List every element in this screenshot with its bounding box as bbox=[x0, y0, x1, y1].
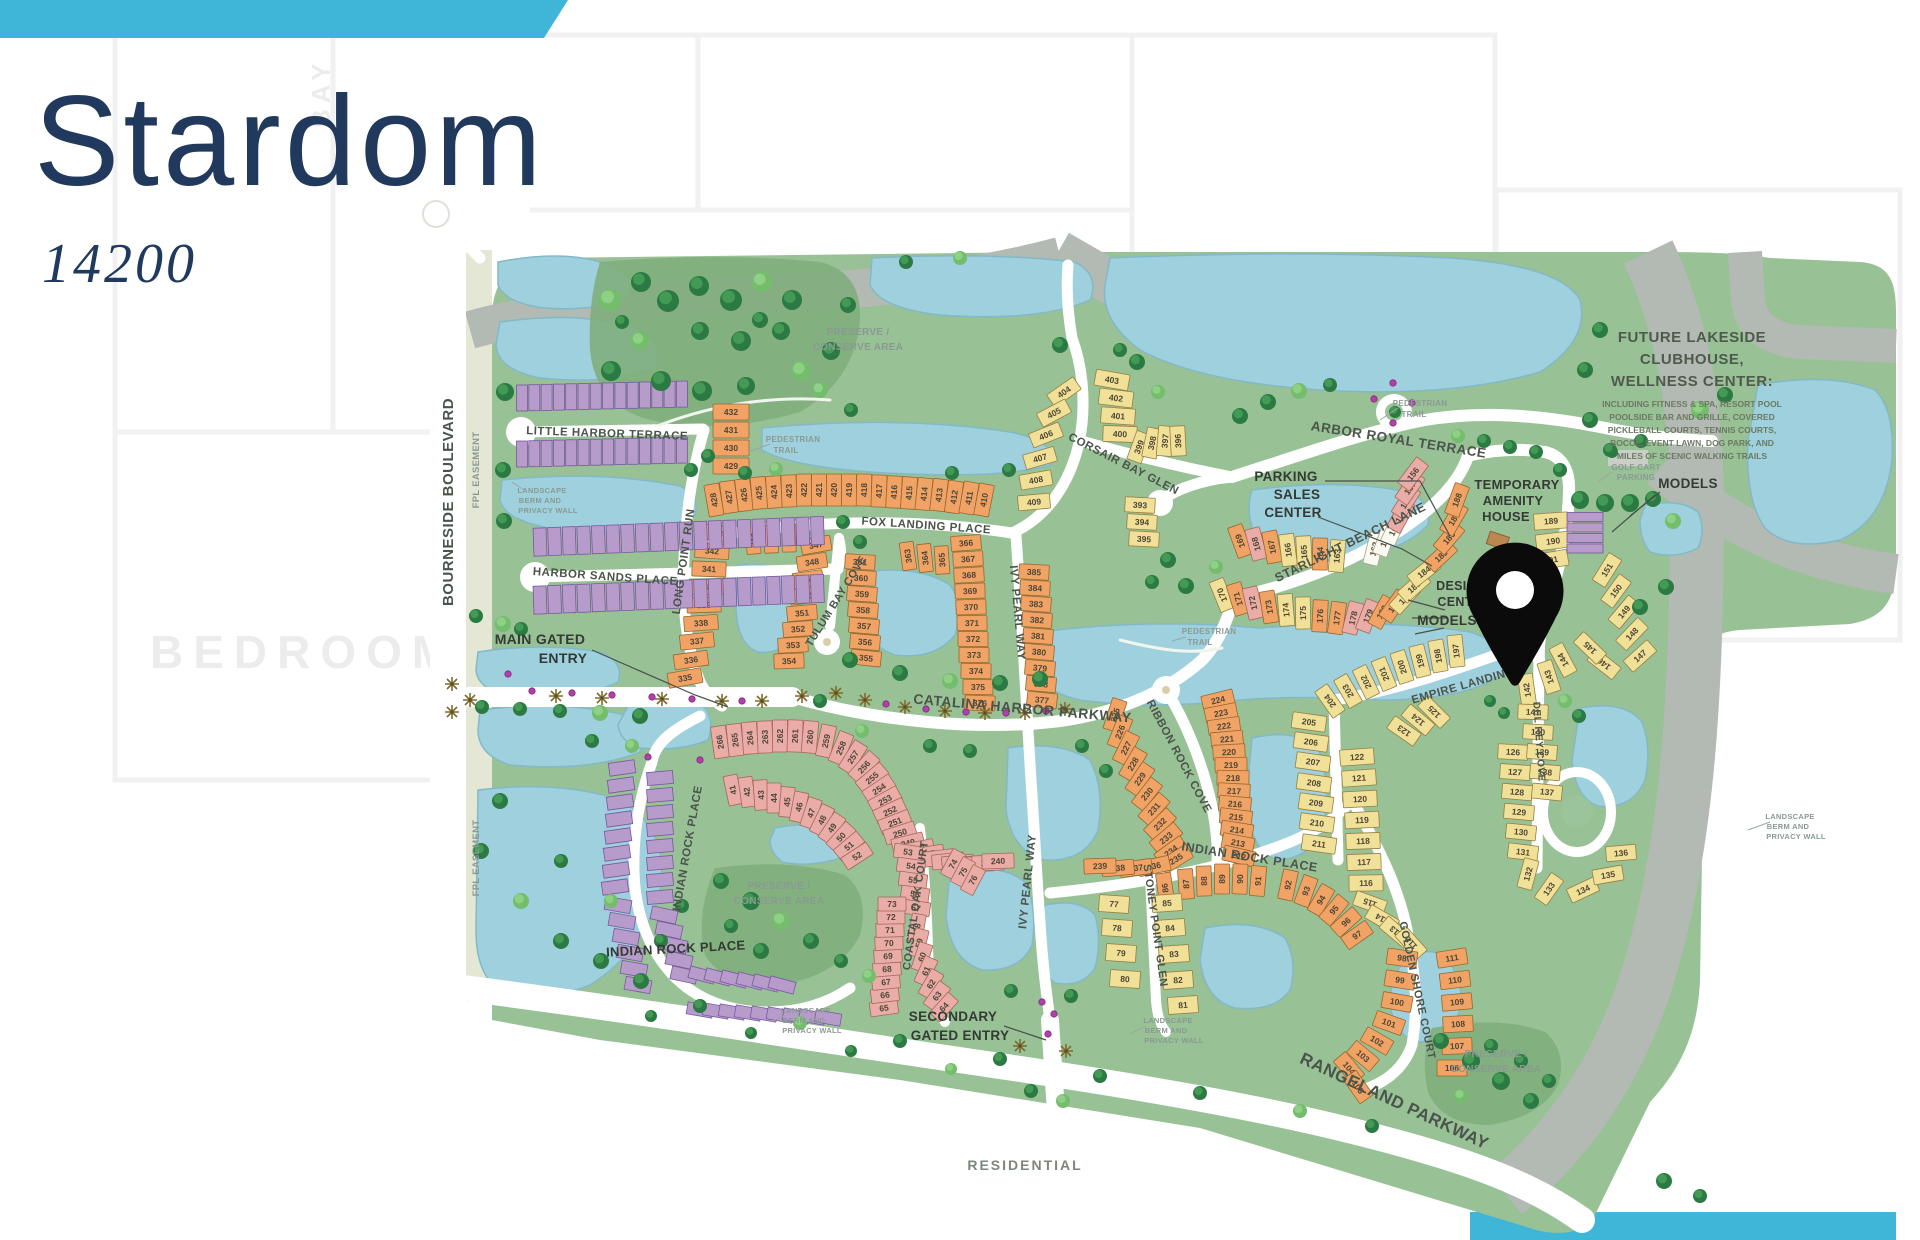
lot-slot bbox=[737, 519, 751, 547]
lot-shape bbox=[646, 838, 673, 853]
lot-number: 177 bbox=[1331, 610, 1343, 626]
map-label-berm-and: BERM AND bbox=[783, 1016, 826, 1025]
tree-highlight bbox=[994, 1053, 1002, 1061]
pin-hole bbox=[1496, 571, 1534, 609]
lot-shape bbox=[627, 382, 638, 408]
lot-number: 419 bbox=[844, 483, 854, 497]
lot-number: 341 bbox=[702, 564, 717, 574]
lot-shape bbox=[548, 527, 562, 555]
lot-slot bbox=[1567, 534, 1603, 543]
lot-shape bbox=[615, 383, 626, 409]
lot-416: 416 bbox=[886, 476, 903, 509]
lot-374: 374 bbox=[961, 663, 991, 679]
lot-number: 68 bbox=[882, 964, 893, 975]
lot-shape bbox=[603, 383, 614, 409]
flowering-shrub bbox=[609, 692, 615, 698]
lot-number: 417 bbox=[874, 483, 884, 498]
map-label-pedestrian: PEDESTRIAN bbox=[1393, 399, 1448, 408]
lot-422: 422 bbox=[796, 474, 812, 506]
lot-number: 70 bbox=[884, 938, 894, 948]
map-label-privacy-wall: PRIVACY WALL bbox=[1766, 832, 1826, 841]
palm-tree-icon bbox=[858, 693, 872, 707]
lot-shape bbox=[810, 516, 824, 544]
map-label-privacy-wall: PRIVACY WALL bbox=[1144, 1036, 1204, 1045]
lot-shape bbox=[796, 517, 810, 545]
map-label-landscape: LANDSCAPE bbox=[517, 486, 566, 495]
map-label-fpl-easement: FPL EASEMENT bbox=[471, 432, 482, 509]
lot-shape bbox=[562, 527, 576, 555]
tree-highlight bbox=[1025, 1085, 1033, 1093]
lot-number: 220 bbox=[1222, 747, 1237, 758]
lot-number: 430 bbox=[724, 443, 738, 453]
tree-highlight bbox=[1100, 765, 1108, 773]
tree-highlight bbox=[1485, 696, 1492, 703]
lot-number: 396 bbox=[1173, 433, 1184, 448]
lot-slot bbox=[646, 889, 673, 904]
lot-shape bbox=[708, 521, 722, 549]
tree-highlight bbox=[946, 467, 954, 475]
lot-shape bbox=[566, 440, 577, 466]
tree-highlight bbox=[1180, 579, 1189, 588]
lot-393: 393 bbox=[1125, 497, 1156, 514]
tree-highlight bbox=[498, 514, 507, 523]
lot-slot bbox=[694, 579, 708, 607]
tree-highlight bbox=[1543, 1075, 1551, 1083]
lot-slot bbox=[590, 439, 601, 465]
lot-423: 423 bbox=[781, 475, 797, 508]
lot-419: 419 bbox=[842, 474, 857, 506]
lot-261: 261 bbox=[787, 720, 803, 753]
map-label-golf-cart: GOLF CART bbox=[1611, 463, 1660, 472]
lot-shape bbox=[708, 579, 722, 607]
lot-number: 421 bbox=[814, 483, 824, 497]
lot-72: 72 bbox=[877, 910, 905, 924]
palm-tree-icon bbox=[795, 689, 809, 703]
lot-number: 413 bbox=[933, 487, 945, 503]
lot-116: 116 bbox=[1349, 875, 1383, 892]
lot-number: 174 bbox=[1280, 602, 1291, 617]
lot-slot bbox=[646, 855, 673, 870]
lot-number: 120 bbox=[1353, 794, 1368, 805]
lot-slot bbox=[533, 586, 547, 614]
lot-number: 108 bbox=[1451, 1019, 1466, 1030]
lot-number: 371 bbox=[965, 618, 980, 628]
lot-number: 382 bbox=[1030, 615, 1045, 626]
lot-shape bbox=[578, 384, 589, 410]
lot-number: 222 bbox=[1216, 720, 1232, 732]
tree-highlight bbox=[1293, 384, 1302, 393]
lot-shape bbox=[533, 528, 547, 556]
tree-highlight bbox=[946, 1064, 953, 1071]
lot-number: 338 bbox=[694, 617, 709, 628]
lot-slot bbox=[646, 838, 673, 853]
lot-384: 384 bbox=[1020, 580, 1051, 597]
lot-shape bbox=[723, 520, 737, 548]
tree-highlight bbox=[1598, 495, 1608, 505]
tree-highlight bbox=[994, 676, 1003, 685]
tree-highlight bbox=[774, 323, 784, 333]
tree-highlight bbox=[900, 256, 908, 264]
lot-number: 219 bbox=[1224, 760, 1239, 770]
lot-number: 43 bbox=[756, 790, 767, 800]
lot-number: 337 bbox=[689, 635, 704, 646]
lot-shape bbox=[640, 382, 651, 408]
lot-number: 380 bbox=[1031, 646, 1046, 657]
lot-number: 381 bbox=[1031, 631, 1046, 642]
lot-357: 357 bbox=[848, 617, 879, 635]
flowering-shrub bbox=[883, 701, 889, 707]
lot-slot bbox=[548, 585, 562, 613]
lot-shape bbox=[1567, 544, 1603, 553]
map-label-models: MODELS bbox=[1658, 476, 1718, 491]
lot-shape bbox=[621, 582, 635, 610]
lot-slot bbox=[553, 440, 564, 466]
lot-number: 261 bbox=[790, 728, 800, 743]
tree-highlight bbox=[837, 516, 845, 524]
lot-91: 91 bbox=[1249, 865, 1267, 896]
map-label-gated-entry: GATED ENTRY bbox=[911, 1028, 1010, 1043]
tree-highlight bbox=[722, 291, 735, 304]
lot-shape bbox=[591, 525, 605, 553]
lot-slot bbox=[1567, 523, 1603, 532]
lot-slot bbox=[578, 440, 589, 466]
lot-number: 119 bbox=[1355, 815, 1369, 826]
lot-slot bbox=[646, 787, 673, 802]
lot-slot bbox=[606, 583, 620, 611]
lot-number: 262 bbox=[775, 729, 785, 743]
lot-slot bbox=[646, 804, 673, 819]
lot-number: 365 bbox=[936, 552, 947, 567]
tree-highlight bbox=[733, 332, 745, 344]
tree-highlight bbox=[646, 1011, 653, 1018]
lot-slot bbox=[752, 577, 766, 605]
lot-slot bbox=[635, 524, 649, 552]
lot-shape bbox=[615, 439, 626, 465]
lot-slot bbox=[590, 383, 601, 409]
tree-highlight bbox=[814, 695, 822, 703]
lot-number: 429 bbox=[724, 461, 738, 471]
lot-shape bbox=[562, 585, 576, 613]
lot-263: 263 bbox=[757, 721, 773, 754]
tree-highlight bbox=[494, 794, 503, 803]
lot-shape bbox=[694, 521, 708, 549]
lot-365: 365 bbox=[934, 546, 950, 575]
lot-number: 78 bbox=[1112, 923, 1122, 934]
map-label-amenity: AMENITY bbox=[1483, 493, 1544, 508]
lot-90: 90 bbox=[1232, 864, 1248, 895]
watermark-text-bedroom: BEDROOM bbox=[150, 626, 460, 678]
map-label-landscape: LANDSCAPE bbox=[1765, 812, 1814, 821]
tree-highlight bbox=[1194, 1087, 1202, 1095]
lot-shape bbox=[646, 787, 673, 802]
lot-number: 85 bbox=[1162, 898, 1172, 909]
lot-369: 369 bbox=[955, 583, 986, 599]
lot-number: 364 bbox=[919, 550, 930, 565]
map-label-preserve: PRESERVE / bbox=[827, 327, 890, 338]
page-subtitle: 14200 bbox=[42, 232, 197, 296]
lot-number: 80 bbox=[1120, 974, 1130, 985]
lot-number: 88 bbox=[1199, 876, 1209, 886]
lot-shape bbox=[796, 575, 810, 603]
map-label-berm-and: BERM AND bbox=[519, 496, 562, 505]
lot-shape bbox=[752, 519, 766, 547]
lot-number: 121 bbox=[1352, 772, 1367, 783]
lot-shape bbox=[627, 438, 638, 464]
lot-shape bbox=[553, 440, 564, 466]
lot-slot bbox=[646, 872, 673, 887]
tree-highlight bbox=[739, 467, 747, 475]
tree-highlight bbox=[555, 855, 563, 863]
lot-shape bbox=[646, 872, 673, 887]
tree-highlight bbox=[616, 316, 624, 324]
lot-number: 415 bbox=[904, 485, 915, 500]
lot-364: 364 bbox=[917, 543, 934, 572]
lot-number: 356 bbox=[857, 636, 872, 647]
lot-shape bbox=[650, 523, 664, 551]
tree-highlight bbox=[1210, 561, 1218, 569]
lot-number: 210 bbox=[1309, 817, 1325, 829]
lot-slot bbox=[529, 441, 540, 467]
lot-number: 137 bbox=[1539, 786, 1554, 797]
lot-number: 166 bbox=[1282, 542, 1294, 558]
lot-number: 87 bbox=[1181, 879, 1192, 889]
tree-highlight bbox=[754, 313, 763, 322]
map-label-sales: SALES bbox=[1274, 487, 1321, 502]
lot-number: 352 bbox=[791, 623, 806, 634]
tree-highlight bbox=[715, 874, 724, 883]
tree-highlight bbox=[835, 955, 843, 963]
lot-197: 197 bbox=[1447, 634, 1465, 667]
lot-number: 354 bbox=[782, 656, 797, 666]
tree-highlight bbox=[515, 623, 523, 631]
tree-highlight bbox=[1435, 1034, 1444, 1043]
lot-number: 190 bbox=[1545, 535, 1561, 547]
lot-shape bbox=[590, 439, 601, 465]
lot-239: 239 bbox=[1084, 858, 1117, 874]
tree-highlight bbox=[964, 745, 972, 753]
lot-136: 136 bbox=[1605, 844, 1636, 862]
map-label-fpl-easement: FPL EASEMENT bbox=[471, 820, 482, 897]
lot-number: 129 bbox=[1511, 806, 1526, 817]
lot-number: 117 bbox=[1357, 857, 1371, 867]
lot-131: 131 bbox=[1507, 843, 1539, 862]
lot-number: 369 bbox=[963, 586, 978, 596]
tree-highlight bbox=[1034, 672, 1043, 681]
lot-shape bbox=[635, 524, 649, 552]
lot-number: 69 bbox=[883, 951, 893, 962]
lot-354: 354 bbox=[774, 653, 805, 669]
lot-slot bbox=[591, 583, 605, 611]
lot-slot bbox=[796, 575, 810, 603]
lot-slot bbox=[553, 384, 564, 410]
lot-number: 367 bbox=[961, 554, 976, 565]
lot-shape bbox=[810, 574, 824, 602]
lot-slot bbox=[606, 525, 620, 553]
lot-number: 423 bbox=[784, 483, 794, 498]
tree-highlight bbox=[1504, 441, 1512, 449]
lot-337: 337 bbox=[679, 632, 714, 650]
palm-tree-icon bbox=[445, 677, 459, 691]
street-link bbox=[1334, 700, 1338, 860]
lot-slot bbox=[562, 585, 576, 613]
tree-highlight bbox=[1694, 1190, 1702, 1198]
lot-slot bbox=[603, 383, 614, 409]
tree-highlight bbox=[1658, 1174, 1667, 1183]
lot-number: 142 bbox=[1521, 682, 1533, 698]
flowering-shrub bbox=[1390, 420, 1396, 426]
lot-77: 77 bbox=[1098, 894, 1129, 913]
lot-80: 80 bbox=[1109, 969, 1140, 988]
lot-381: 381 bbox=[1023, 627, 1054, 644]
tree-highlight bbox=[842, 298, 851, 307]
lot-number: 363 bbox=[902, 548, 914, 564]
tree-highlight bbox=[601, 291, 614, 304]
lot-slot bbox=[646, 821, 673, 836]
lot-number: 336 bbox=[683, 654, 699, 666]
page-title: Stardom bbox=[34, 78, 546, 206]
flowering-shrub bbox=[739, 698, 745, 704]
map-label-pedestrian: PEDESTRIAN bbox=[1182, 627, 1237, 636]
palm-tree-icon bbox=[463, 693, 477, 707]
tree-highlight bbox=[1146, 576, 1154, 584]
lot-slot bbox=[517, 441, 528, 467]
tree-highlight bbox=[954, 252, 962, 260]
map-label-center: CENTER bbox=[1264, 505, 1321, 520]
lot-slot bbox=[621, 582, 635, 610]
lot-number: 44 bbox=[769, 793, 779, 803]
lot-number: 372 bbox=[966, 634, 980, 644]
lot-353: 353 bbox=[778, 637, 809, 654]
lot-number: 409 bbox=[1026, 496, 1041, 507]
lot-128: 128 bbox=[1501, 783, 1532, 801]
lot-number: 426 bbox=[738, 487, 750, 503]
lot-slot bbox=[577, 526, 591, 554]
lot-number: 265 bbox=[729, 732, 740, 747]
lot-122: 122 bbox=[1339, 748, 1374, 766]
lot-418: 418 bbox=[856, 474, 872, 506]
tree-highlight bbox=[1262, 395, 1271, 404]
tree-highlight bbox=[746, 1028, 753, 1035]
map-label-secondary: SECONDARY bbox=[909, 1009, 997, 1024]
tree-highlight bbox=[497, 617, 506, 626]
lot-shape bbox=[646, 770, 673, 785]
lot-409: 409 bbox=[1017, 493, 1050, 511]
tree-highlight bbox=[1057, 1095, 1065, 1103]
lot-slot bbox=[810, 516, 824, 544]
lot-number: 402 bbox=[1108, 392, 1124, 404]
lot-number: 209 bbox=[1308, 797, 1324, 809]
lot-number: 374 bbox=[969, 666, 984, 676]
lot-slot bbox=[723, 578, 737, 606]
lot-264: 264 bbox=[741, 722, 758, 755]
lot-number: 357 bbox=[856, 620, 871, 631]
tree-highlight bbox=[863, 970, 871, 978]
tree-highlight bbox=[894, 1035, 902, 1043]
lot-number: 175 bbox=[1298, 606, 1308, 621]
lot-shape bbox=[621, 524, 635, 552]
lot-371: 371 bbox=[957, 615, 987, 631]
palm-tree-icon bbox=[595, 691, 609, 705]
flowering-shrub bbox=[1371, 396, 1377, 402]
lot-slot bbox=[694, 521, 708, 549]
loop-island bbox=[1561, 796, 1593, 828]
lot-slot bbox=[541, 440, 552, 466]
lot-number: 264 bbox=[744, 730, 755, 745]
lot-number: 383 bbox=[1029, 599, 1044, 610]
tree-highlight bbox=[846, 1046, 853, 1053]
lot-number: 394 bbox=[1135, 517, 1150, 528]
lot-260: 260 bbox=[801, 720, 819, 753]
lot-number: 99 bbox=[1395, 974, 1406, 985]
tree-highlight bbox=[854, 536, 862, 544]
lot-number: 84 bbox=[1165, 923, 1175, 934]
map-label-berm-and: BERM AND bbox=[1145, 1026, 1188, 1035]
tree-highlight bbox=[694, 382, 706, 394]
lot-shape bbox=[646, 804, 673, 819]
lot-shape bbox=[1567, 534, 1603, 543]
tree-highlight bbox=[515, 894, 524, 903]
lot-number: 393 bbox=[1133, 500, 1148, 511]
lot-108: 108 bbox=[1443, 1015, 1474, 1033]
lot-number: 385 bbox=[1027, 567, 1042, 578]
lot-356: 356 bbox=[849, 633, 880, 651]
lot-401: 401 bbox=[1100, 407, 1135, 425]
lot-number: 211 bbox=[1312, 838, 1327, 850]
lot-number: 218 bbox=[1226, 773, 1241, 783]
tree-highlight bbox=[1623, 495, 1633, 505]
tree-highlight bbox=[595, 954, 604, 963]
lot-slot bbox=[752, 519, 766, 547]
tree-highlight bbox=[1573, 492, 1583, 502]
tree-highlight bbox=[470, 610, 478, 618]
flowering-shrub bbox=[1045, 1031, 1051, 1037]
lot-number: 359 bbox=[855, 589, 870, 600]
lot-number: 353 bbox=[786, 640, 801, 651]
map-label-residential: RESIDENTIAL bbox=[967, 1157, 1082, 1173]
lot-number: 65 bbox=[879, 1002, 890, 1013]
map-label-landscape: LANDSCAPE bbox=[781, 1006, 830, 1015]
map-label-pedestrian: PEDESTRIAN bbox=[766, 435, 821, 444]
lot-slot bbox=[723, 520, 737, 548]
tree-highlight bbox=[514, 703, 522, 711]
map-label-clubhouse: CLUBHOUSE, bbox=[1640, 351, 1744, 368]
lot-383: 383 bbox=[1021, 595, 1052, 612]
lot-slot bbox=[1567, 513, 1603, 522]
lot-373: 373 bbox=[959, 648, 989, 663]
tree-highlight bbox=[1525, 1094, 1534, 1103]
tree-highlight bbox=[856, 725, 864, 733]
palm-tree-icon bbox=[1013, 1039, 1027, 1053]
lot-number: 107 bbox=[1450, 1041, 1465, 1051]
tree-highlight bbox=[555, 934, 564, 943]
lot-shape bbox=[640, 438, 651, 464]
lot-slot bbox=[767, 576, 781, 604]
lot-shape bbox=[664, 522, 678, 550]
tree-highlight bbox=[894, 666, 903, 675]
lot-44: 44 bbox=[767, 783, 781, 813]
lot-number: 79 bbox=[1116, 948, 1126, 959]
cul-de-sac-island bbox=[1162, 686, 1170, 694]
tree-highlight bbox=[1554, 464, 1562, 472]
map-label-main-gated: MAIN GATED bbox=[495, 631, 586, 647]
lot-372: 372 bbox=[958, 632, 988, 647]
flowering-shrub bbox=[697, 757, 703, 763]
lot-number: 368 bbox=[962, 570, 977, 581]
lot-number: 208 bbox=[1306, 777, 1322, 789]
lot-shape bbox=[676, 381, 687, 407]
lot-shape bbox=[723, 578, 737, 606]
tree-highlight bbox=[1005, 985, 1013, 993]
